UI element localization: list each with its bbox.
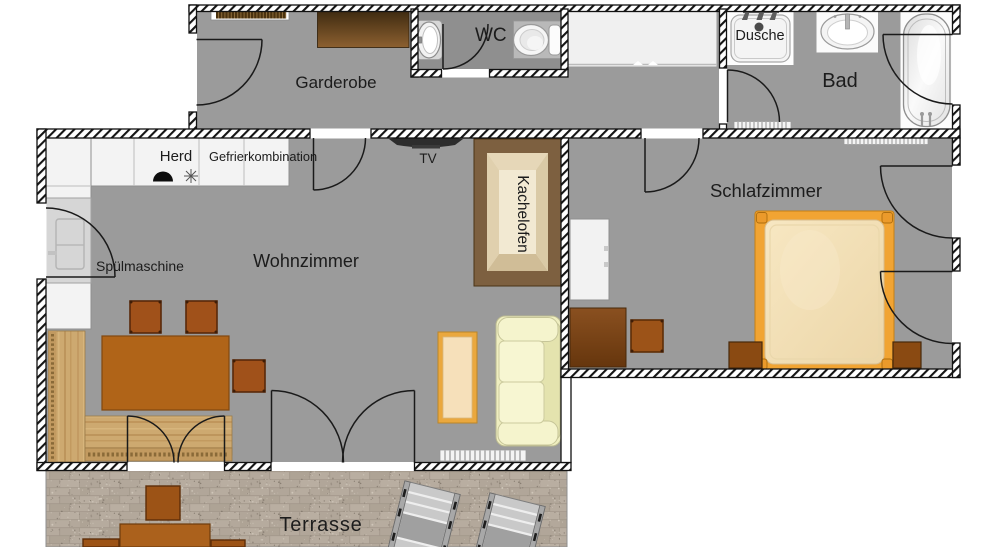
svg-text:Garderobe: Garderobe [295, 73, 376, 92]
svg-text:Herd: Herd [160, 148, 193, 165]
svg-text:Spülmaschine: Spülmaschine [96, 258, 184, 274]
svg-text:Schlafzimmer: Schlafzimmer [710, 180, 822, 201]
svg-text:Kachelofen: Kachelofen [514, 175, 531, 253]
svg-text:Gefrierkombination: Gefrierkombination [209, 149, 317, 164]
svg-text:Terrasse: Terrasse [279, 514, 362, 536]
svg-text:TV: TV [419, 151, 436, 166]
svg-text:Dusche: Dusche [735, 28, 784, 44]
svg-text:Bad: Bad [822, 70, 858, 92]
svg-text:Wohnzimmer: Wohnzimmer [253, 251, 359, 271]
svg-text:WC: WC [475, 25, 507, 46]
